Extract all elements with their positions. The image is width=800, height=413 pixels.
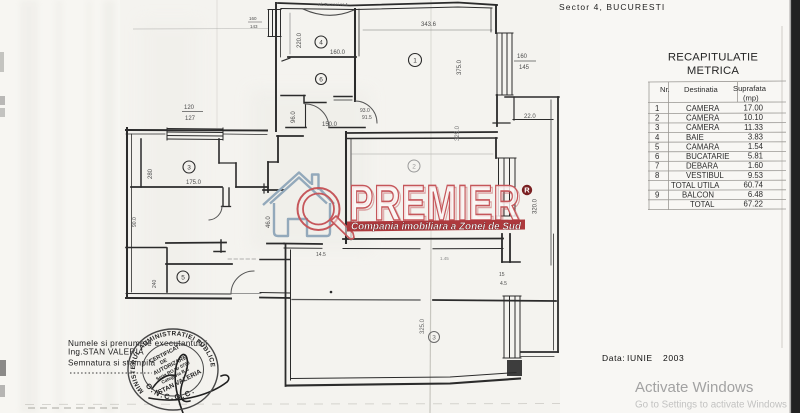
svg-text:120: 120	[184, 105, 195, 111]
svg-text:TOTAL: TOTAL	[690, 200, 715, 209]
svg-text:CAMERA: CAMERA	[686, 123, 720, 132]
svg-text:2003: 2003	[663, 353, 684, 363]
svg-text:1: 1	[413, 58, 417, 65]
svg-text:3: 3	[655, 123, 659, 132]
svg-text:2: 2	[655, 114, 659, 123]
svg-text:3.83: 3.83	[748, 132, 763, 141]
svg-text:9.53: 9.53	[748, 171, 763, 180]
svg-text:14.5: 14.5	[316, 252, 326, 258]
svg-text:BUCATARIE: BUCATARIE	[686, 152, 729, 161]
svg-text:160.0: 160.0	[330, 50, 346, 56]
svg-text:5: 5	[181, 275, 185, 282]
svg-text:220.0: 220.0	[297, 32, 303, 48]
svg-text:4: 4	[319, 40, 323, 47]
svg-text:60.74: 60.74	[743, 180, 763, 189]
svg-text:Data:: Data:	[602, 353, 625, 363]
svg-text:127: 127	[185, 116, 196, 122]
svg-text:1.60: 1.60	[748, 161, 764, 170]
svg-text:46.0: 46.0	[266, 216, 272, 228]
svg-text:Al. Terasei nr.4: Al. Terasei nr.4	[318, 2, 348, 7]
svg-text:375.0: 375.0	[457, 59, 463, 75]
svg-text:(mp): (mp)	[743, 94, 759, 103]
svg-text:7: 7	[655, 162, 659, 171]
svg-text:160: 160	[249, 16, 257, 21]
svg-text:17.00: 17.00	[743, 104, 763, 113]
svg-text:145: 145	[519, 65, 530, 71]
svg-text:150.0: 150.0	[322, 122, 338, 128]
svg-text:Suprafata: Suprafata	[733, 84, 767, 93]
svg-text:4: 4	[655, 133, 660, 142]
svg-text:15: 15	[499, 272, 505, 278]
svg-text:Compania imobiliara a Zonei de: Compania imobiliara a Zonei de Sud	[351, 222, 522, 233]
svg-text:1.45: 1.45	[440, 256, 449, 261]
svg-text:R: R	[524, 186, 530, 195]
svg-text:343.6: 343.6	[421, 22, 437, 28]
svg-text:CAMERA: CAMERA	[686, 114, 720, 123]
svg-text:Activate Windows: Activate Windows	[635, 379, 753, 396]
svg-text:143: 143	[250, 24, 258, 29]
svg-text:175.0: 175.0	[186, 180, 202, 186]
svg-text:Nr.: Nr.	[660, 85, 670, 94]
svg-text:CAMARA: CAMARA	[686, 142, 720, 151]
svg-text:Sector 4, BUCURESTI: Sector 4, BUCURESTI	[559, 2, 665, 12]
svg-text:160: 160	[517, 54, 528, 60]
svg-text:325.0: 325.0	[455, 125, 461, 141]
svg-text:10.10: 10.10	[743, 113, 763, 122]
svg-text:22.0: 22.0	[524, 114, 536, 120]
svg-text:2: 2	[412, 164, 416, 171]
svg-text:5: 5	[655, 142, 660, 151]
svg-text:METRICA: METRICA	[687, 65, 740, 77]
svg-text:90.0: 90.0	[132, 217, 138, 227]
svg-text:TOTAL UTILA: TOTAL UTILA	[671, 181, 720, 190]
svg-text:BALCON: BALCON	[682, 190, 714, 199]
svg-text:3: 3	[432, 335, 436, 342]
svg-text:CAMERA: CAMERA	[686, 104, 720, 113]
svg-text:93.0: 93.0	[360, 108, 370, 114]
svg-text:1.54: 1.54	[748, 142, 764, 151]
svg-text:BAIE: BAIE	[686, 133, 704, 142]
svg-text:Go to Settings to activate Win: Go to Settings to activate Windows	[635, 400, 787, 411]
svg-text:320.0: 320.0	[533, 198, 539, 214]
svg-text:6: 6	[655, 152, 659, 161]
svg-text:Destinatia: Destinatia	[684, 85, 719, 94]
svg-text:8: 8	[655, 171, 659, 180]
svg-text:3: 3	[187, 165, 191, 172]
svg-text:4.5: 4.5	[500, 281, 507, 287]
svg-text:1: 1	[655, 104, 659, 113]
svg-text:6: 6	[319, 77, 323, 84]
svg-text:325.0: 325.0	[420, 318, 426, 334]
svg-text:RECAPITULATIE: RECAPITULATIE	[668, 52, 759, 64]
svg-text:6.48: 6.48	[748, 190, 763, 199]
svg-text:280: 280	[148, 168, 154, 179]
svg-text:240: 240	[152, 279, 158, 288]
svg-text:67.22: 67.22	[743, 200, 763, 209]
svg-text:91.5: 91.5	[362, 115, 372, 121]
svg-text:9: 9	[655, 190, 659, 199]
svg-text:11.33: 11.33	[744, 123, 763, 132]
svg-text:96.0: 96.0	[291, 111, 297, 123]
svg-text:DEBARA: DEBARA	[686, 162, 719, 171]
svg-text:VESTIBUL: VESTIBUL	[686, 171, 724, 180]
svg-text:5.81: 5.81	[748, 152, 763, 161]
svg-text:IUNIE: IUNIE	[627, 353, 653, 363]
